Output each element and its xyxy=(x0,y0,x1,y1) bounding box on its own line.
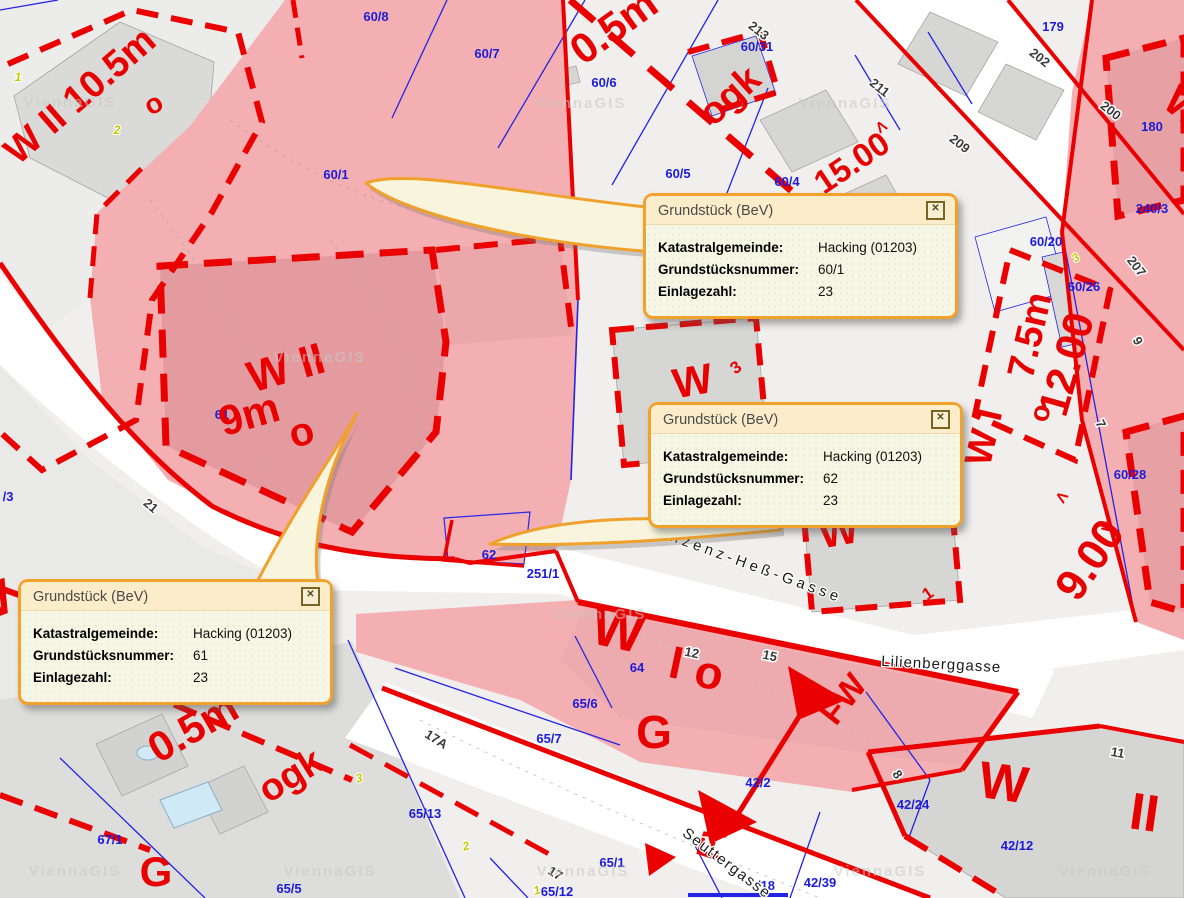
map-label-w: W xyxy=(669,354,717,407)
field-label: Einlagezahl: xyxy=(663,493,823,508)
field-row: Grundstücksnummer: 61 xyxy=(33,648,318,663)
map-label-65-5: 65/5 xyxy=(276,881,301,896)
map-label-g: G xyxy=(140,848,173,895)
field-label: Katastralgemeinde: xyxy=(33,626,193,641)
map-label-179: 179 xyxy=(1042,19,1064,34)
field-label: Einlagezahl: xyxy=(33,670,193,685)
field-value: 23 xyxy=(193,670,208,685)
map-label-60-1: 60/1 xyxy=(323,167,348,182)
map-label-2: 2 xyxy=(113,123,121,137)
field-row: Katastralgemeinde: Hacking (01203) xyxy=(33,626,318,641)
map-label-viennagis: ViennaGIS xyxy=(1059,863,1152,880)
map-label--3: /3 xyxy=(3,489,14,504)
map-label-60-31: 60/31 xyxy=(741,39,774,54)
map-label-viennagis: ViennaGIS xyxy=(834,863,927,880)
map-label-62: 62 xyxy=(482,547,496,562)
map-label-240-3: 240/3 xyxy=(1136,201,1169,216)
field-value: 23 xyxy=(818,284,833,299)
popup-body: Katastralgemeinde: Hacking (01203) Grund… xyxy=(21,611,330,702)
map-label-viennagis: ViennaGIS xyxy=(274,349,367,366)
field-label: Katastralgemeinde: xyxy=(663,449,823,464)
map-label-1: 1 xyxy=(15,70,22,84)
building-highlight-sub[interactable] xyxy=(436,238,572,345)
field-label: Grundstücksnummer: xyxy=(33,648,193,663)
map-label-65-12: 65/12 xyxy=(541,884,574,898)
popup-title: Grundstück (BeV) xyxy=(33,589,148,605)
map-label-viennagis: ViennaGIS xyxy=(534,95,627,112)
popup-title: Grundstück (BeV) xyxy=(658,203,773,219)
popup-title: Grundstück (BeV) xyxy=(663,412,778,428)
field-row: Grundstücksnummer: 60/1 xyxy=(658,262,943,277)
map-label-viennagis: ViennaGIS xyxy=(554,606,647,623)
map-label-180: 180 xyxy=(1141,119,1163,134)
map-label-60-5: 60/5 xyxy=(665,166,690,181)
map-label-67-1: 67/1 xyxy=(97,832,122,847)
map-label-g: G xyxy=(636,706,672,758)
field-row: Grundstücksnummer: 62 xyxy=(663,471,948,486)
field-value: Hacking (01203) xyxy=(818,240,917,255)
field-row: Katastralgemeinde: Hacking (01203) xyxy=(663,449,948,464)
map-label-60-6: 60/6 xyxy=(591,75,616,90)
map-label-viennagis: ViennaGIS xyxy=(799,95,892,112)
map-label-60-28: 60/28 xyxy=(1114,467,1147,482)
map-label-60-20: 60/20 xyxy=(1030,234,1063,249)
map-label-42-2: 42/2 xyxy=(745,775,770,790)
map-label-65-13: 65/13 xyxy=(409,806,442,821)
field-row: Einlagezahl: 23 xyxy=(33,670,318,685)
field-value: 60/1 xyxy=(818,262,844,277)
field-value: Hacking (01203) xyxy=(823,449,922,464)
field-value: 61 xyxy=(193,648,208,663)
map-label-viennagis: ViennaGIS xyxy=(29,863,122,880)
popup-title-bar: Grundstück (BeV) ✕ xyxy=(21,582,330,611)
map-label-42-12: 42/12 xyxy=(1001,838,1034,853)
info-popup-parcel-62: Grundstück (BeV) ✕ Katastralgemeinde: Ha… xyxy=(648,402,963,528)
close-icon[interactable]: ✕ xyxy=(926,201,945,220)
map-label-15: 15 xyxy=(761,647,778,665)
field-row: Einlagezahl: 23 xyxy=(658,284,943,299)
close-icon[interactable]: ✕ xyxy=(301,587,320,606)
field-row: Einlagezahl: 23 xyxy=(663,493,948,508)
map-label-65-6: 65/6 xyxy=(572,696,597,711)
field-value: 23 xyxy=(823,493,838,508)
map-label-11: 11 xyxy=(1110,744,1126,761)
popup-title-bar: Grundstück (BeV) ✕ xyxy=(646,196,955,225)
field-label: Einlagezahl: xyxy=(658,284,818,299)
gis-map-view: 60/860/760/660/560/460/31179180240/360/2… xyxy=(0,0,1184,898)
field-label: Grundstücksnummer: xyxy=(663,471,823,486)
field-value: 62 xyxy=(823,471,838,486)
map-canvas[interactable]: 60/860/760/660/560/460/31179180240/360/2… xyxy=(0,0,1184,898)
map-label-60-8: 60/8 xyxy=(363,9,388,24)
map-label-60-26: 60/26 xyxy=(1068,279,1101,294)
info-popup-parcel-61: Grundstück (BeV) ✕ Katastralgemeinde: Ha… xyxy=(18,579,333,705)
map-label-viennagis: ViennaGIS xyxy=(537,863,630,880)
map-label-60-7: 60/7 xyxy=(474,46,499,61)
map-label-42-39: 42/39 xyxy=(804,875,837,890)
map-label-42-24: 42/24 xyxy=(897,797,930,812)
popup-title-bar: Grundstück (BeV) ✕ xyxy=(651,405,960,434)
info-popup-parcel-60-1: Grundstück (BeV) ✕ Katastralgemeinde: Ha… xyxy=(643,193,958,319)
map-label-viennagis: ViennaGIS xyxy=(24,94,117,111)
map-label-251-1: 251/1 xyxy=(527,566,560,581)
map-label-w: W xyxy=(975,751,1033,815)
field-value: Hacking (01203) xyxy=(193,626,292,641)
close-icon[interactable]: ✕ xyxy=(931,410,950,429)
popup-body: Katastralgemeinde: Hacking (01203) Grund… xyxy=(646,225,955,316)
map-label-65-7: 65/7 xyxy=(536,731,561,746)
field-label: Katastralgemeinde: xyxy=(658,240,818,255)
field-label: Grundstücksnummer: xyxy=(658,262,818,277)
map-label-60-4: 60/4 xyxy=(774,174,800,189)
map-label-viennagis: ViennaGIS xyxy=(284,863,377,880)
field-row: Katastralgemeinde: Hacking (01203) xyxy=(658,240,943,255)
popup-body: Katastralgemeinde: Hacking (01203) Grund… xyxy=(651,434,960,525)
